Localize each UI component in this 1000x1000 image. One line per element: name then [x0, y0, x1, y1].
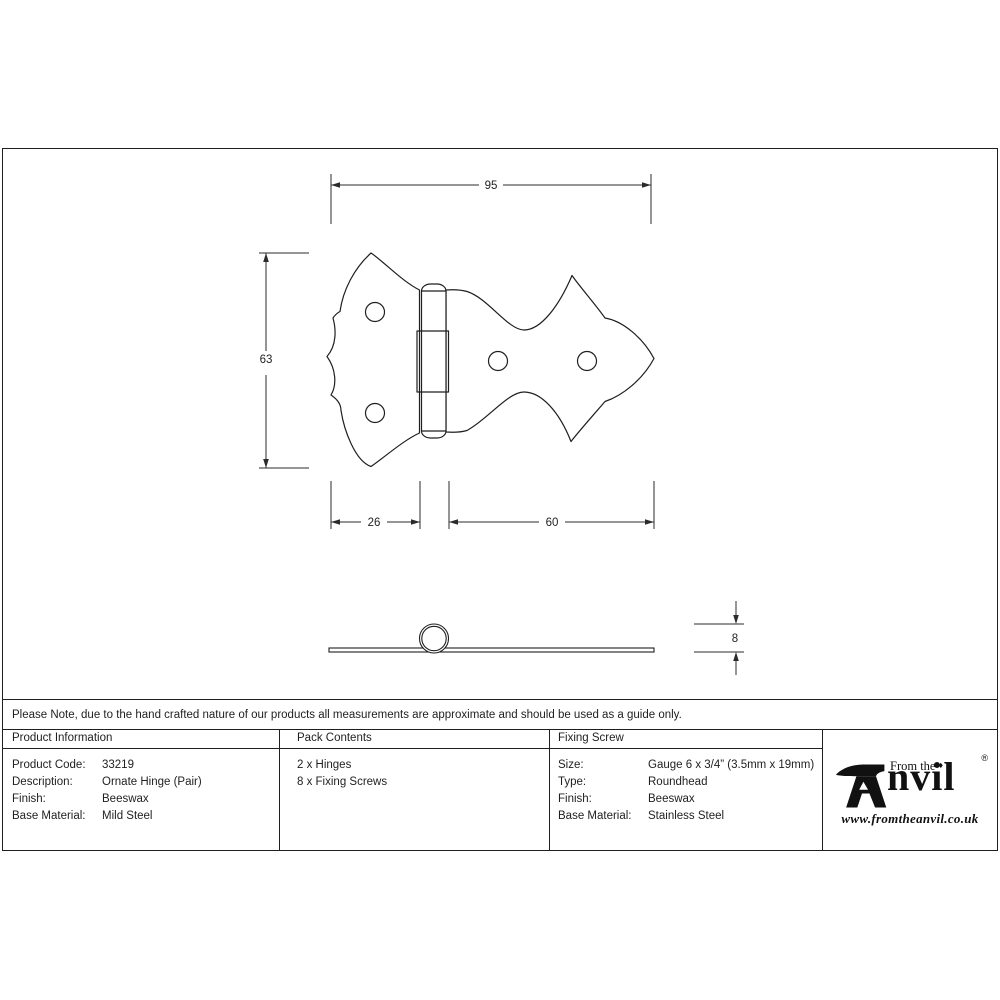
table-row: Base Material: Mild Steel	[12, 808, 279, 825]
screw-hole	[578, 352, 597, 371]
datasheet-frame: 95 63 26 60 8	[2, 148, 998, 851]
side-view-leaf-bar	[329, 648, 654, 652]
table-row: Finish: Beeswax	[558, 791, 822, 808]
brand-logo-cell: From the♦ nvil ® www.fromtheanvil.co.uk	[823, 730, 997, 850]
table-row: Base Material: Stainless Steel	[558, 808, 822, 825]
side-view-knuckle-outer	[420, 624, 449, 653]
right-leaf-outline	[446, 276, 654, 442]
table-row: Finish: Beeswax	[12, 791, 279, 808]
header-product-information: Product Information	[3, 730, 280, 749]
header-fixing-screw: Fixing Screw	[550, 730, 823, 749]
hinge-pin-barrel	[422, 284, 447, 438]
from-the-anvil-logo: From the♦ nvil ® www.fromtheanvil.co.uk	[832, 751, 988, 829]
logo-website: www.fromtheanvil.co.uk	[832, 811, 988, 827]
dim-left-leaf: 26	[368, 517, 381, 529]
dim-knuckle-height: 8	[732, 633, 738, 645]
product-information-cell: Product Code: 33219 Description: Ornate …	[3, 749, 280, 850]
hinge-plan-view	[327, 253, 654, 467]
hinge-side-view	[329, 624, 654, 653]
dim-overall-width: 95	[485, 180, 498, 192]
screw-hole	[489, 352, 508, 371]
table-row: Size: Gauge 6 x 3/4” (3.5mm x 19mm)	[558, 757, 822, 774]
measurement-note-text: Please Note, due to the hand crafted nat…	[12, 709, 682, 721]
dim-overall-height: 63	[260, 354, 273, 366]
fixing-screw-cell: Size: Gauge 6 x 3/4” (3.5mm x 19mm) Type…	[550, 749, 823, 850]
dim-right-leaf: 60	[546, 517, 559, 529]
technical-drawing: 95 63 26 60 8	[3, 149, 997, 699]
screw-hole	[366, 404, 385, 423]
header-pack-contents: Pack Contents	[280, 730, 550, 749]
left-leaf-outline	[327, 253, 420, 467]
hinge-drawing-svg: 95 63 26 60 8	[3, 149, 996, 699]
anvil-icon	[834, 761, 890, 811]
datasheet-page: { "note": "Please Note, due to the hand …	[0, 0, 1000, 1000]
registered-mark: ®	[981, 753, 988, 763]
screw-hole	[366, 303, 385, 322]
list-item: 8 x Fixing Screws	[297, 774, 549, 791]
logo-name: nvil	[887, 757, 955, 797]
table-row: Product Code: 33219	[12, 757, 279, 774]
list-item: 2 x Hinges	[297, 757, 549, 774]
product-info-table: Product Information Pack Contents Fixing…	[3, 729, 997, 850]
table-row: Type: Roundhead	[558, 774, 822, 791]
table-row: Description: Ornate Hinge (Pair)	[12, 774, 279, 791]
measurement-note-row: Please Note, due to the hand crafted nat…	[3, 699, 997, 729]
pack-contents-cell: 2 x Hinges 8 x Fixing Screws	[280, 749, 550, 850]
dimension-lines	[259, 174, 744, 675]
